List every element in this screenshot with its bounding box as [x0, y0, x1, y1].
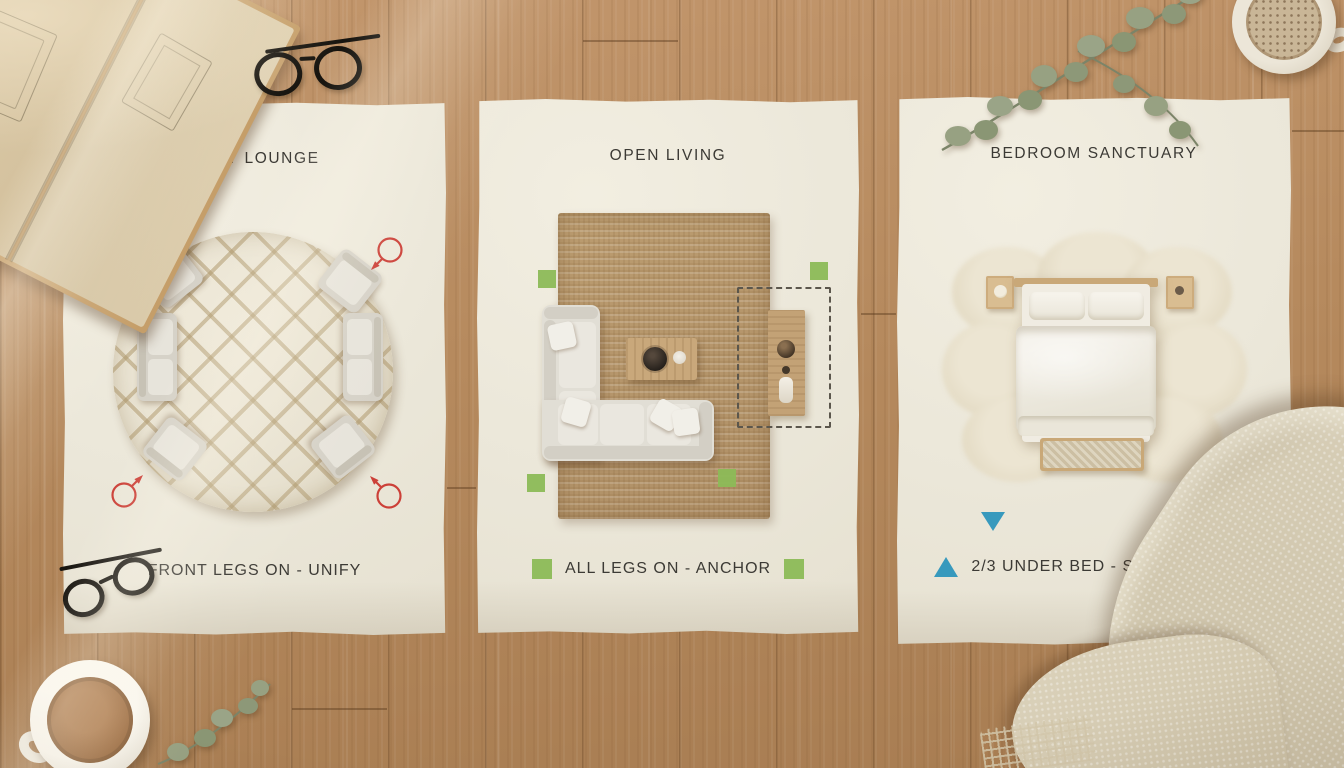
plank-joint: [861, 313, 896, 315]
coffee-table: [626, 338, 697, 380]
seat-cushion: [347, 359, 372, 395]
folded-blanket: [1018, 416, 1154, 436]
decor-bowl: [643, 347, 667, 371]
teal-triangle-down-icon: [981, 512, 1005, 531]
green-anchor-square-icon: [784, 559, 804, 579]
plank-joint: [583, 40, 678, 42]
bed-pillow: [1088, 292, 1144, 320]
loveseat-right: [343, 313, 383, 401]
sofa-armrest: [699, 402, 712, 459]
green-anchor-square-icon: [810, 262, 828, 280]
glasses-bridge: [299, 56, 315, 61]
card-caption: ALL LEGS ON - ANCHOR: [477, 559, 859, 579]
green-anchor-square-icon: [532, 559, 552, 579]
glasses-lens: [313, 45, 363, 91]
reading-glasses-top: [251, 35, 388, 102]
decor-dot: [782, 366, 790, 374]
red-pull-arrow-icon: [363, 236, 407, 280]
console-table: [768, 310, 805, 416]
decor-vase: [779, 377, 793, 403]
red-pull-arrow-icon: [362, 466, 406, 510]
green-anchor-square-icon: [718, 469, 736, 487]
decor-item: [1175, 286, 1184, 295]
green-anchor-square-icon: [527, 474, 545, 492]
nightstand-left: [986, 276, 1014, 309]
coffee-mug: [30, 660, 150, 768]
sofa-armrest: [544, 307, 598, 319]
decor-cup: [673, 351, 686, 364]
foot-bench: [1040, 438, 1144, 471]
plank-joint: [1292, 130, 1344, 132]
bed: [1014, 278, 1158, 448]
throw-pillow: [547, 321, 578, 352]
plank-joint: [292, 708, 387, 710]
red-pull-arrow-icon: [107, 465, 151, 509]
sofa-backrest: [544, 446, 712, 459]
throw-pillow: [671, 407, 700, 436]
green-anchor-square-icon: [538, 270, 556, 288]
card-title: OPEN LIVING: [477, 147, 859, 165]
plank-joint: [447, 487, 476, 489]
seat-cushion: [148, 319, 173, 355]
caption-text: FRONT LEGS ON - UNIFY: [148, 562, 362, 580]
ceramic-mug: [1232, 0, 1336, 74]
seat-cushion: [148, 359, 173, 395]
seat-cushion: [600, 404, 644, 445]
coffee-surface: [47, 677, 133, 763]
teal-triangle-up-icon: [934, 557, 958, 577]
decor-sphere: [777, 340, 795, 358]
eucalyptus-branch-icon: [928, 0, 1228, 163]
bed-pillow: [1029, 292, 1085, 320]
caption-text: ALL LEGS ON - ANCHOR: [565, 560, 771, 578]
seat-cushion: [347, 319, 372, 355]
card-open-living: OPEN LIVING ALL LEGS ON - ANCHOR: [477, 99, 859, 634]
nightstand-right: [1166, 276, 1194, 309]
glasses-lens: [253, 51, 303, 97]
decor-candle: [994, 285, 1007, 298]
eucalyptus-sprig-icon: [150, 678, 280, 768]
